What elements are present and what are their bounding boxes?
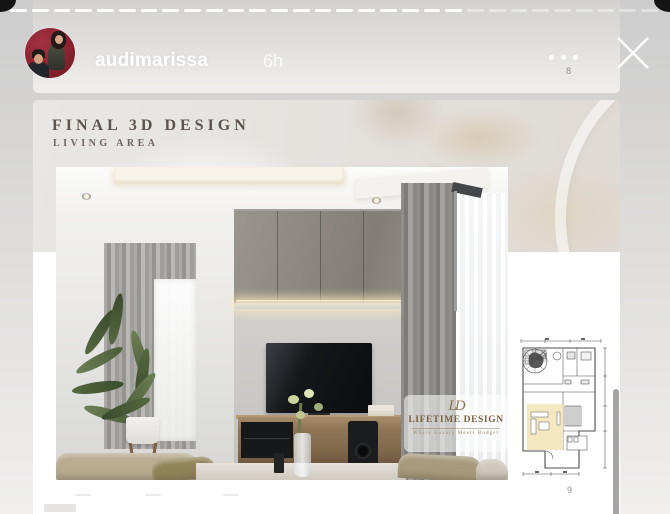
- progress-segment: [206, 9, 223, 12]
- story-timestamp: 6h: [263, 51, 283, 72]
- faint-mark: [223, 494, 239, 496]
- progress-segment: [228, 9, 245, 12]
- more-options-button[interactable]: [549, 55, 578, 60]
- progress-segment: [249, 9, 266, 12]
- progress-segment: [576, 9, 593, 12]
- scrollbar-thumb[interactable]: [613, 389, 619, 514]
- design-title: FINAL 3D DESIGN: [52, 117, 250, 135]
- flower: [304, 389, 314, 398]
- progress-segment: [467, 9, 484, 12]
- living-room-render: LD LIFETIME DESIGN Where Luxury Meets Bu…: [56, 167, 508, 480]
- slide-page-number: 9: [567, 485, 572, 495]
- progress-segment: [424, 9, 441, 12]
- faint-mark: [75, 494, 91, 496]
- progress-segment: [141, 9, 158, 12]
- flower: [314, 403, 323, 411]
- previous-slide-page-number: 8: [566, 66, 571, 76]
- progress-segment: [402, 9, 419, 12]
- logo-tagline: Where Luxury Meets Budget: [412, 428, 500, 436]
- sofa-arm: [476, 459, 508, 480]
- progress-segment: [445, 9, 462, 12]
- progress-segment: [641, 9, 658, 12]
- media-shelf: [241, 422, 293, 458]
- plant-pot: [126, 417, 159, 444]
- sofa-pillow: [397, 453, 482, 480]
- progress-segment: [119, 9, 136, 12]
- logo-monogram-icon: LD: [404, 399, 508, 414]
- progress-segment: [10, 9, 27, 12]
- story-progress-bar: [10, 9, 658, 12]
- flower: [288, 395, 299, 404]
- upper-cabinets: [234, 209, 406, 303]
- progress-segment: [511, 9, 528, 12]
- progress-segment: [315, 9, 332, 12]
- close-button[interactable]: [614, 34, 652, 72]
- previous-slide-card: [33, 0, 620, 93]
- design-slide-card: FINAL 3D DESIGN LIVING AREA: [33, 100, 620, 514]
- avatar[interactable]: [25, 28, 75, 78]
- progress-segment: [32, 9, 49, 12]
- flower-vase: [294, 433, 311, 477]
- dot-icon: [549, 55, 554, 60]
- led-strip-light: [236, 300, 404, 309]
- avatar-figure: [34, 54, 43, 64]
- downlight: [82, 193, 91, 200]
- dot-icon: [573, 55, 578, 60]
- flower: [296, 411, 305, 419]
- progress-segment: [271, 9, 288, 12]
- progress-segment: [598, 9, 615, 12]
- downlight: [372, 197, 381, 204]
- faint-mark: [44, 504, 76, 512]
- progress-segment: [75, 9, 92, 12]
- table-decor: [274, 453, 284, 473]
- watermark-logo: LD LIFETIME DESIGN Where Luxury Meets Bu…: [404, 395, 508, 452]
- progress-segment: [162, 9, 179, 12]
- progress-segment: [380, 9, 397, 12]
- username[interactable]: audimarissa: [95, 50, 208, 72]
- progress-segment: [184, 9, 201, 12]
- decorative-arc: [555, 100, 620, 252]
- progress-segment: [336, 9, 353, 12]
- subwoofer-speaker: [348, 421, 378, 465]
- design-subtitle: LIVING AREA: [53, 138, 158, 149]
- logo-name: LIFETIME DESIGN: [404, 414, 508, 426]
- window-frame-edge: [454, 191, 457, 311]
- ceiling-cove-light: [114, 167, 344, 183]
- progress-segment: [489, 9, 506, 12]
- progress-segment: [358, 9, 375, 12]
- book-stack: [368, 405, 394, 416]
- floor-plan: [515, 336, 610, 484]
- avatar-figure: [55, 35, 63, 44]
- faint-mark: [145, 494, 161, 496]
- close-icon: [614, 34, 652, 72]
- avatar-figure: [27, 62, 49, 78]
- progress-segment: [54, 9, 71, 12]
- story-viewer: 8 FINAL 3D DESIGN LIVING AREA: [0, 0, 670, 514]
- progress-segment: [97, 9, 114, 12]
- dot-icon: [561, 55, 566, 60]
- progress-segment: [532, 9, 549, 12]
- progress-segment: [554, 9, 571, 12]
- progress-segment: [619, 9, 636, 12]
- progress-segment: [293, 9, 310, 12]
